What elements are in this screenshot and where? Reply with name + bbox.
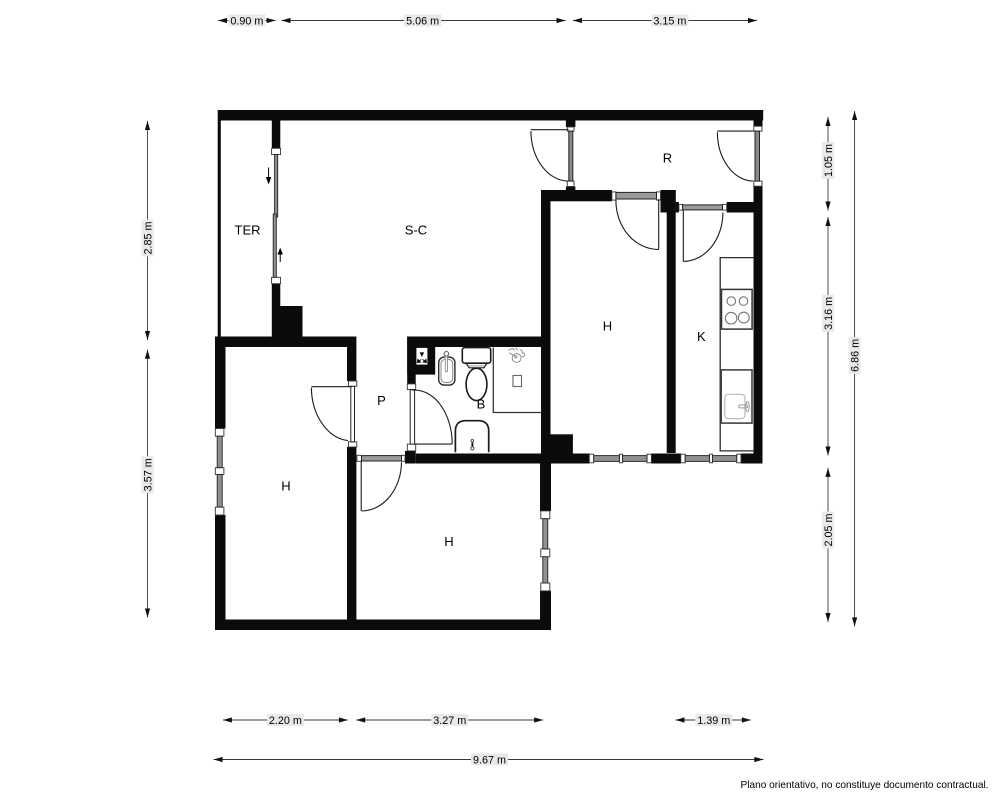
svg-text:2.05 m: 2.05 m [823, 513, 835, 546]
svg-text:1.05 m: 1.05 m [823, 144, 835, 177]
svg-text:6.86 m: 6.86 m [850, 339, 862, 372]
svg-text:1.39 m: 1.39 m [697, 715, 730, 727]
svg-text:9.67 m: 9.67 m [473, 754, 506, 766]
svg-text:3.16 m: 3.16 m [823, 297, 835, 330]
svg-text:H: H [281, 479, 290, 494]
svg-text:K: K [697, 329, 706, 344]
svg-text:Plano orientativo, no constitu: Plano orientativo, no constituye documen… [741, 779, 989, 791]
svg-text:0.90 m: 0.90 m [230, 15, 263, 27]
svg-text:R: R [663, 151, 672, 166]
svg-text:3.57 m: 3.57 m [142, 458, 154, 491]
svg-text:3.27 m: 3.27 m [433, 715, 466, 727]
svg-text:5.06 m: 5.06 m [406, 15, 439, 27]
svg-text:S-C: S-C [405, 223, 427, 238]
svg-text:2.20 m: 2.20 m [269, 715, 302, 727]
svg-text:2.85 m: 2.85 m [142, 221, 154, 254]
svg-text:H: H [603, 319, 612, 334]
svg-text:P: P [377, 393, 386, 408]
svg-text:3.15 m: 3.15 m [653, 15, 686, 27]
svg-text:B: B [477, 397, 486, 412]
svg-text:H: H [444, 534, 453, 549]
svg-text:TER: TER [235, 223, 261, 238]
